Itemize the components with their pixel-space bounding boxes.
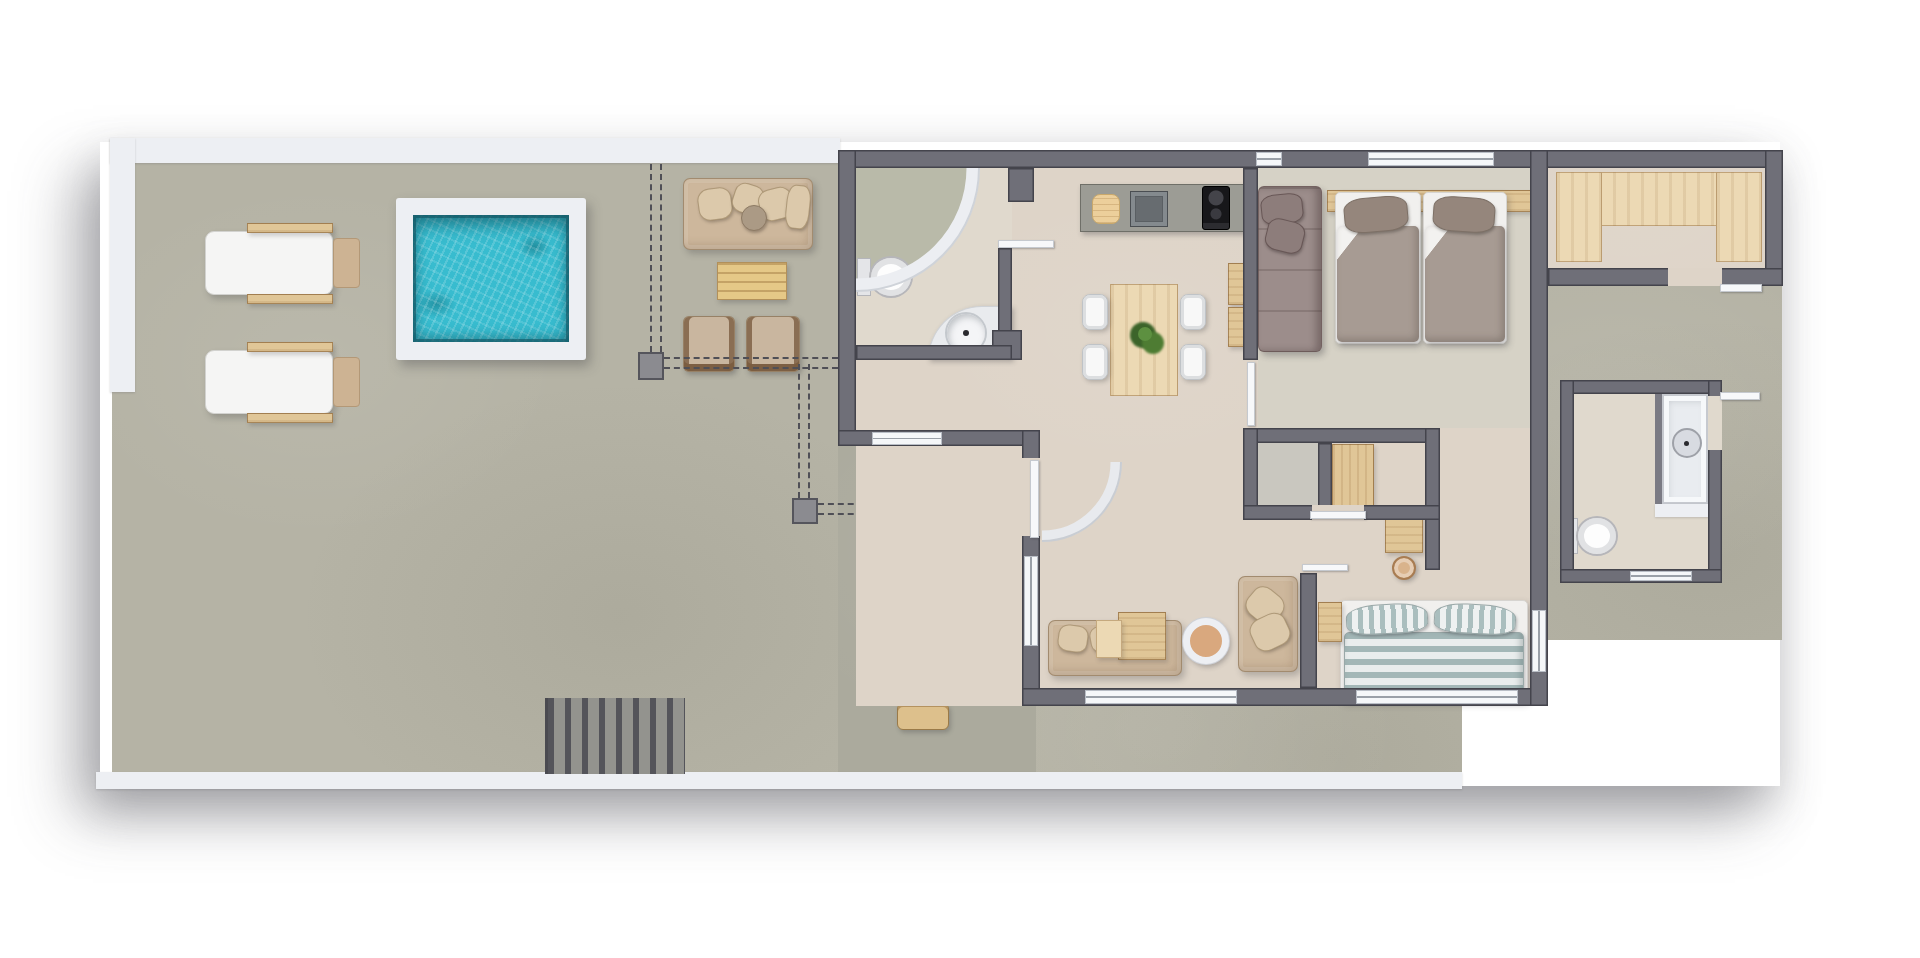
floor-plan <box>0 0 1920 958</box>
plan-drop-shadow <box>100 142 1780 786</box>
